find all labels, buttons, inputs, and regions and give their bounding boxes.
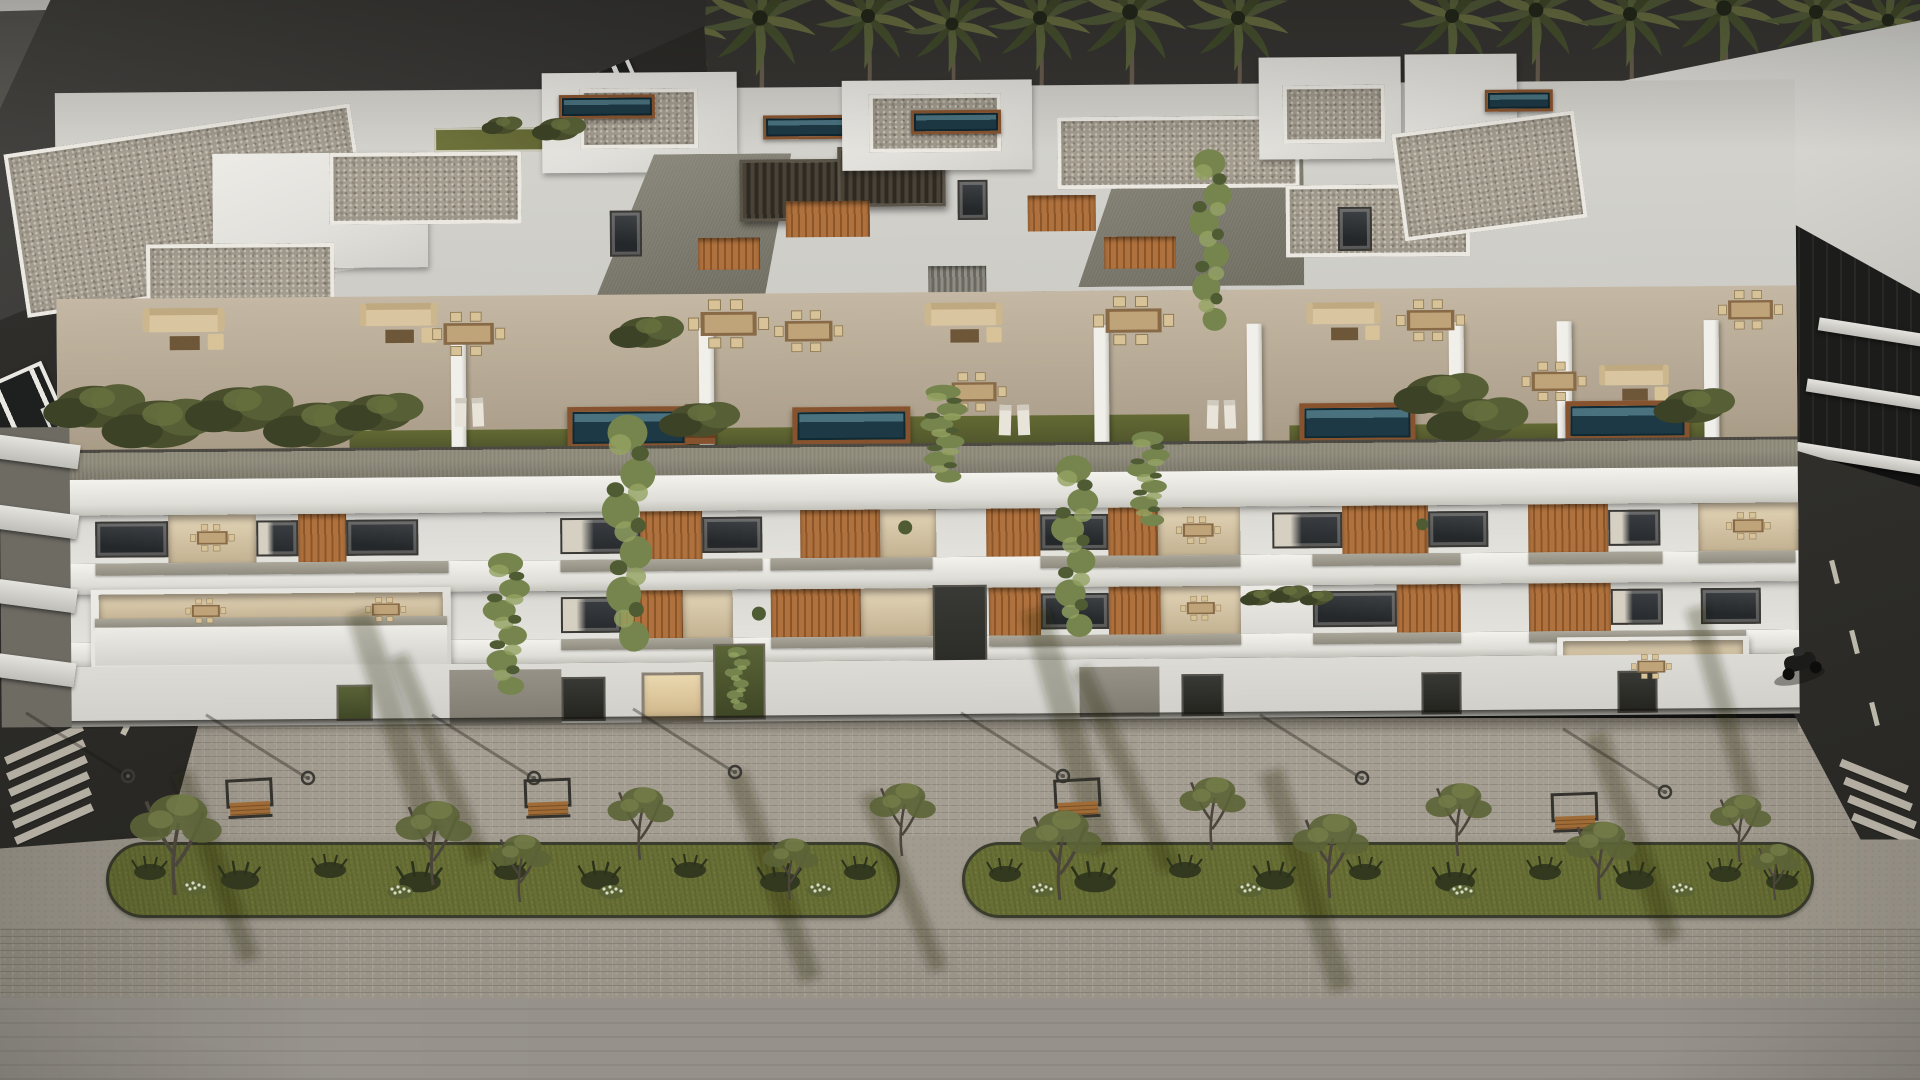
tree [1180, 777, 1246, 850]
tree [1750, 844, 1801, 900]
bench [227, 779, 273, 819]
tree [1426, 783, 1492, 856]
street-light-icon [528, 772, 540, 784]
flower-bush [387, 885, 413, 899]
scene [0, 0, 1920, 1080]
bush [672, 854, 707, 878]
street-trees [130, 777, 1801, 902]
bush [132, 856, 167, 880]
bush [312, 854, 347, 878]
bush [842, 856, 877, 880]
bush [1072, 861, 1118, 892]
bush [1707, 858, 1742, 882]
flower-bush [807, 883, 833, 897]
flower-bush [1669, 883, 1695, 897]
bush [1347, 856, 1382, 880]
bush [1527, 856, 1562, 880]
flower-bush [182, 881, 208, 895]
flower-bush [599, 885, 625, 899]
flower-bush [1449, 885, 1475, 899]
street-objects [0, 0, 1920, 1080]
tree [608, 787, 674, 860]
flower-bush [1029, 883, 1055, 897]
bench [525, 779, 570, 819]
bush [987, 858, 1022, 882]
median-planting [132, 854, 1799, 899]
scooter [1767, 642, 1826, 690]
street-light-icon [1659, 786, 1671, 798]
street-light-icon [122, 770, 134, 782]
street-light-icon [1356, 772, 1368, 784]
street-light-icon [302, 772, 314, 784]
